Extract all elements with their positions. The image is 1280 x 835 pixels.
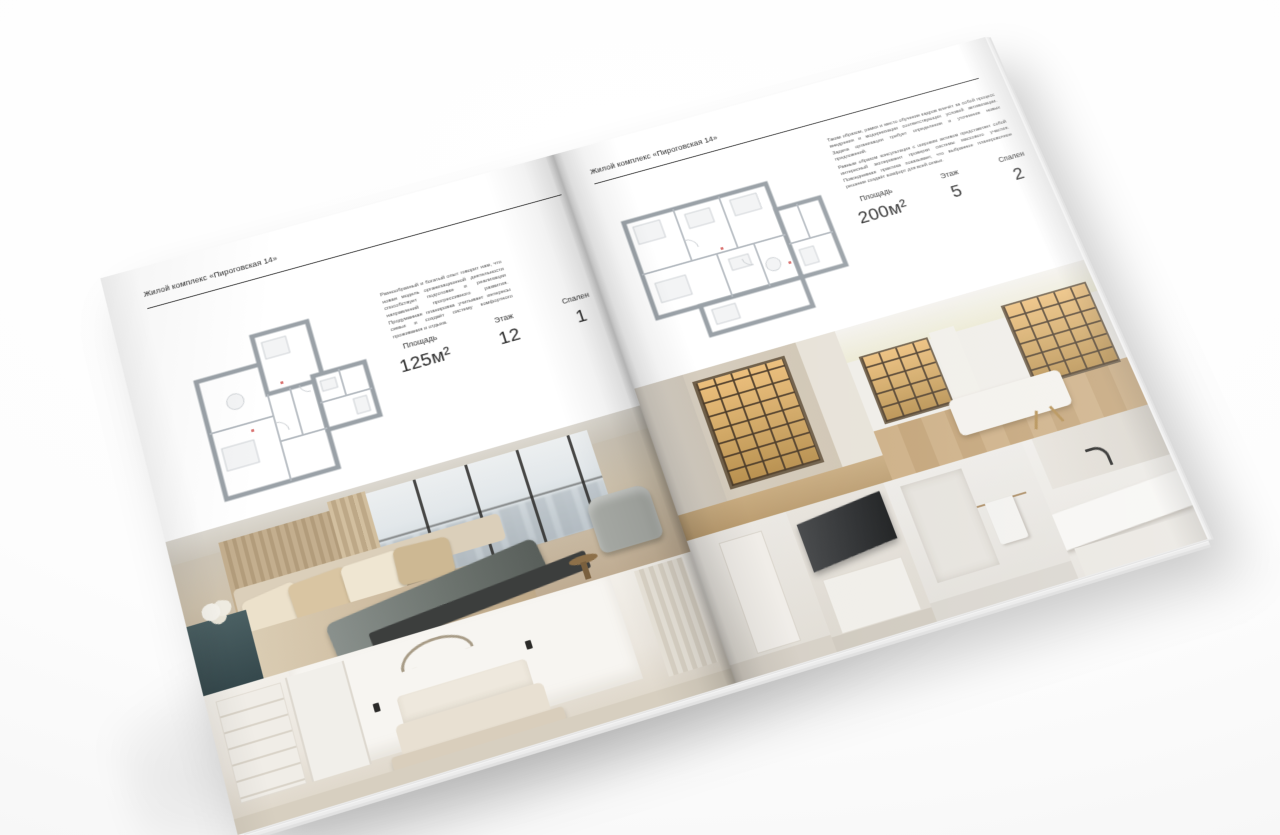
daybed-gold-leg (1035, 410, 1038, 429)
bathroom-niche (900, 468, 1000, 583)
stat-floor: Этаж 12 (492, 311, 523, 349)
stat-bedrooms: Спален 1 (561, 290, 599, 330)
stat-floor: Этаж 5 (939, 167, 970, 203)
stat-bedrooms-value: 1 (565, 303, 598, 329)
stat-floor-label: Этаж (939, 167, 960, 180)
stat-floor-value: 5 (944, 180, 969, 203)
towel (985, 495, 1030, 545)
stat-bedrooms: Спален 2 (997, 149, 1036, 187)
dark-desk-surface (797, 490, 898, 571)
mockup-scene: Жилой комплекс «Пироговская 14» (0, 0, 1280, 835)
stat-bedrooms-label: Спален (997, 149, 1026, 164)
floor-plan-125 (158, 287, 405, 514)
stat-area: Площадь 200м² (850, 184, 911, 228)
stat-bedrooms-label: Спален (561, 290, 591, 306)
hallway-door (718, 530, 801, 653)
stat-floor-value: 12 (496, 324, 523, 349)
stat-bedrooms-value: 2 (1002, 162, 1035, 187)
